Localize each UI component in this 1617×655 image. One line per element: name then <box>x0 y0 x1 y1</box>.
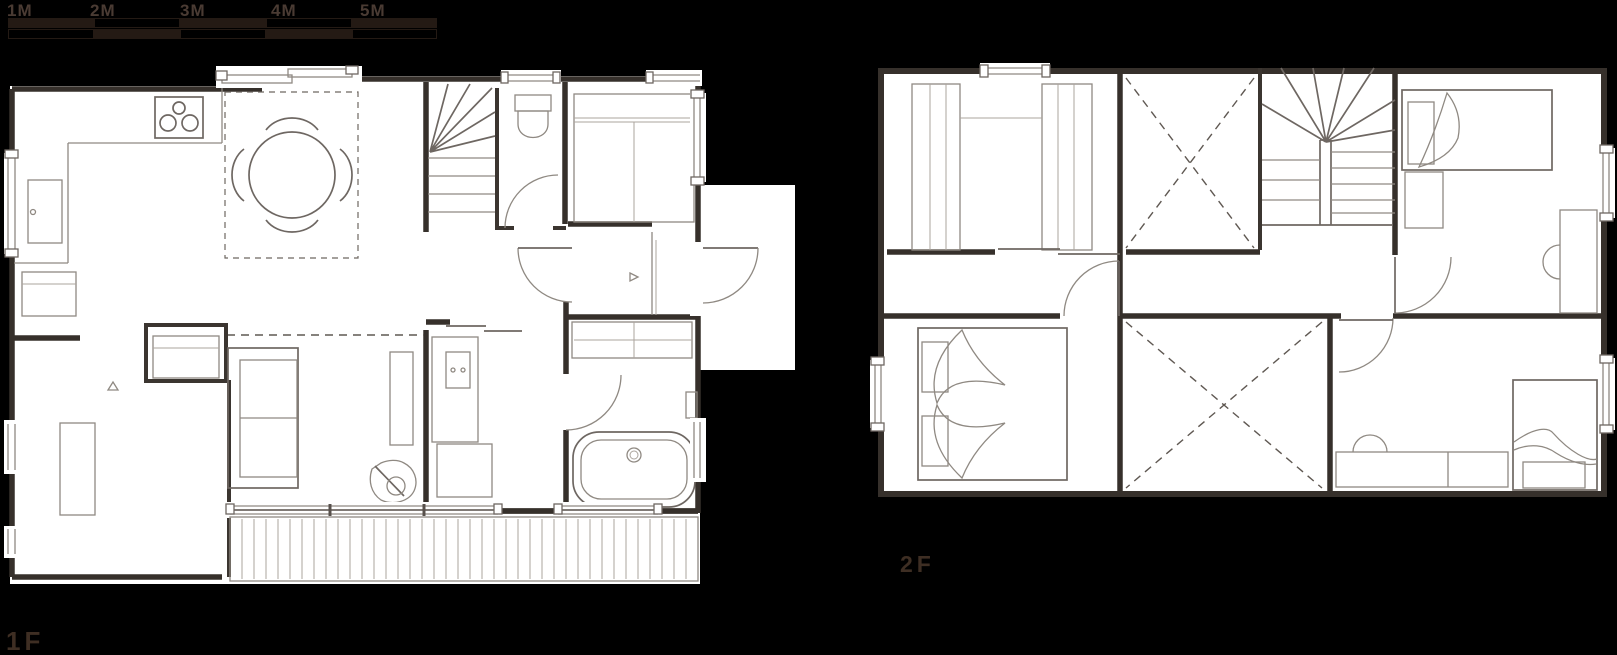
floorplan-page: 1M 2M 3M 4M 5M 1F 2F <box>0 0 1617 655</box>
plan-1f <box>4 66 795 584</box>
plan-2f <box>870 63 1615 497</box>
window-band-south <box>226 502 662 518</box>
floorplan-drawing <box>0 0 1617 655</box>
entrance-porch <box>700 185 795 370</box>
plan-2f-body <box>878 68 1607 497</box>
